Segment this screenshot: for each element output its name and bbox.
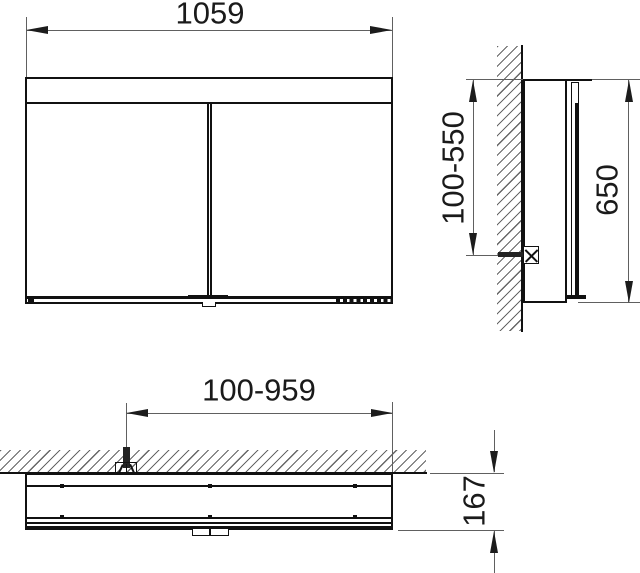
plan-depth-ext-bottom <box>398 530 504 531</box>
side-mount-dimension-line <box>473 80 474 255</box>
plan-wall-hatching <box>0 450 426 472</box>
plan-screw-dot <box>353 515 357 519</box>
side-height-arrow-bottom <box>625 281 633 303</box>
side-anchor-bracket <box>523 246 539 264</box>
plan-anchor-leg <box>126 464 128 473</box>
plan-depth-arrow-bottom <box>490 531 498 553</box>
side-door-inner-line <box>575 103 578 295</box>
front-handle-strip <box>188 295 228 299</box>
plan-mount-dimension-line <box>126 413 393 414</box>
plan-screw-dot <box>208 484 212 488</box>
plan-depth-ext-top <box>430 473 504 474</box>
front-center-tab <box>202 302 216 307</box>
side-height-dimension-label: 650 <box>592 164 623 216</box>
plan-screw-dot <box>208 515 212 519</box>
side-screw-shaft <box>498 252 524 258</box>
front-view: 1059 <box>0 0 420 320</box>
plan-depth-dimension-label: 167 <box>459 475 490 527</box>
front-left-vent-mark <box>28 299 34 303</box>
side-cabinet-body <box>523 79 567 303</box>
front-dim-arrow-left <box>26 26 48 34</box>
side-height-arrow-top <box>625 80 633 102</box>
front-width-dimension-label: 1059 <box>176 0 245 29</box>
plan-mount-dimension-label: 100-959 <box>202 375 316 406</box>
side-height-dimension-line <box>628 80 629 303</box>
side-wall-hatching <box>497 46 521 331</box>
side-mount-arrow-bottom <box>469 233 477 255</box>
side-view: 100-550 650 <box>420 0 640 360</box>
front-vent-slots <box>336 299 391 303</box>
front-top-panel <box>25 77 393 104</box>
plan-mount-arrow-right <box>371 409 393 417</box>
plan-depth-arrow-top <box>490 451 498 473</box>
side-mount-dimension-label: 100-550 <box>438 111 469 225</box>
plan-view: 100-959 167 <box>0 370 640 573</box>
plan-screw-dot <box>60 515 64 519</box>
plan-screw-dot <box>353 484 357 488</box>
side-door-bottom-foot <box>567 295 586 299</box>
technical-drawing-canvas: 1059 100-550 <box>0 0 640 573</box>
plan-door-front-line <box>27 526 391 528</box>
plan-mount-arrow-left <box>126 409 148 417</box>
front-dim-arrow-right <box>370 26 392 34</box>
front-left-door <box>25 102 209 298</box>
side-top-edge <box>566 79 592 81</box>
plan-screw-dot <box>60 484 64 488</box>
side-mount-arrow-top <box>469 80 477 102</box>
plan-door-back-line <box>27 522 391 524</box>
plan-handle-tab-divider <box>209 529 211 536</box>
front-right-door <box>210 102 393 298</box>
